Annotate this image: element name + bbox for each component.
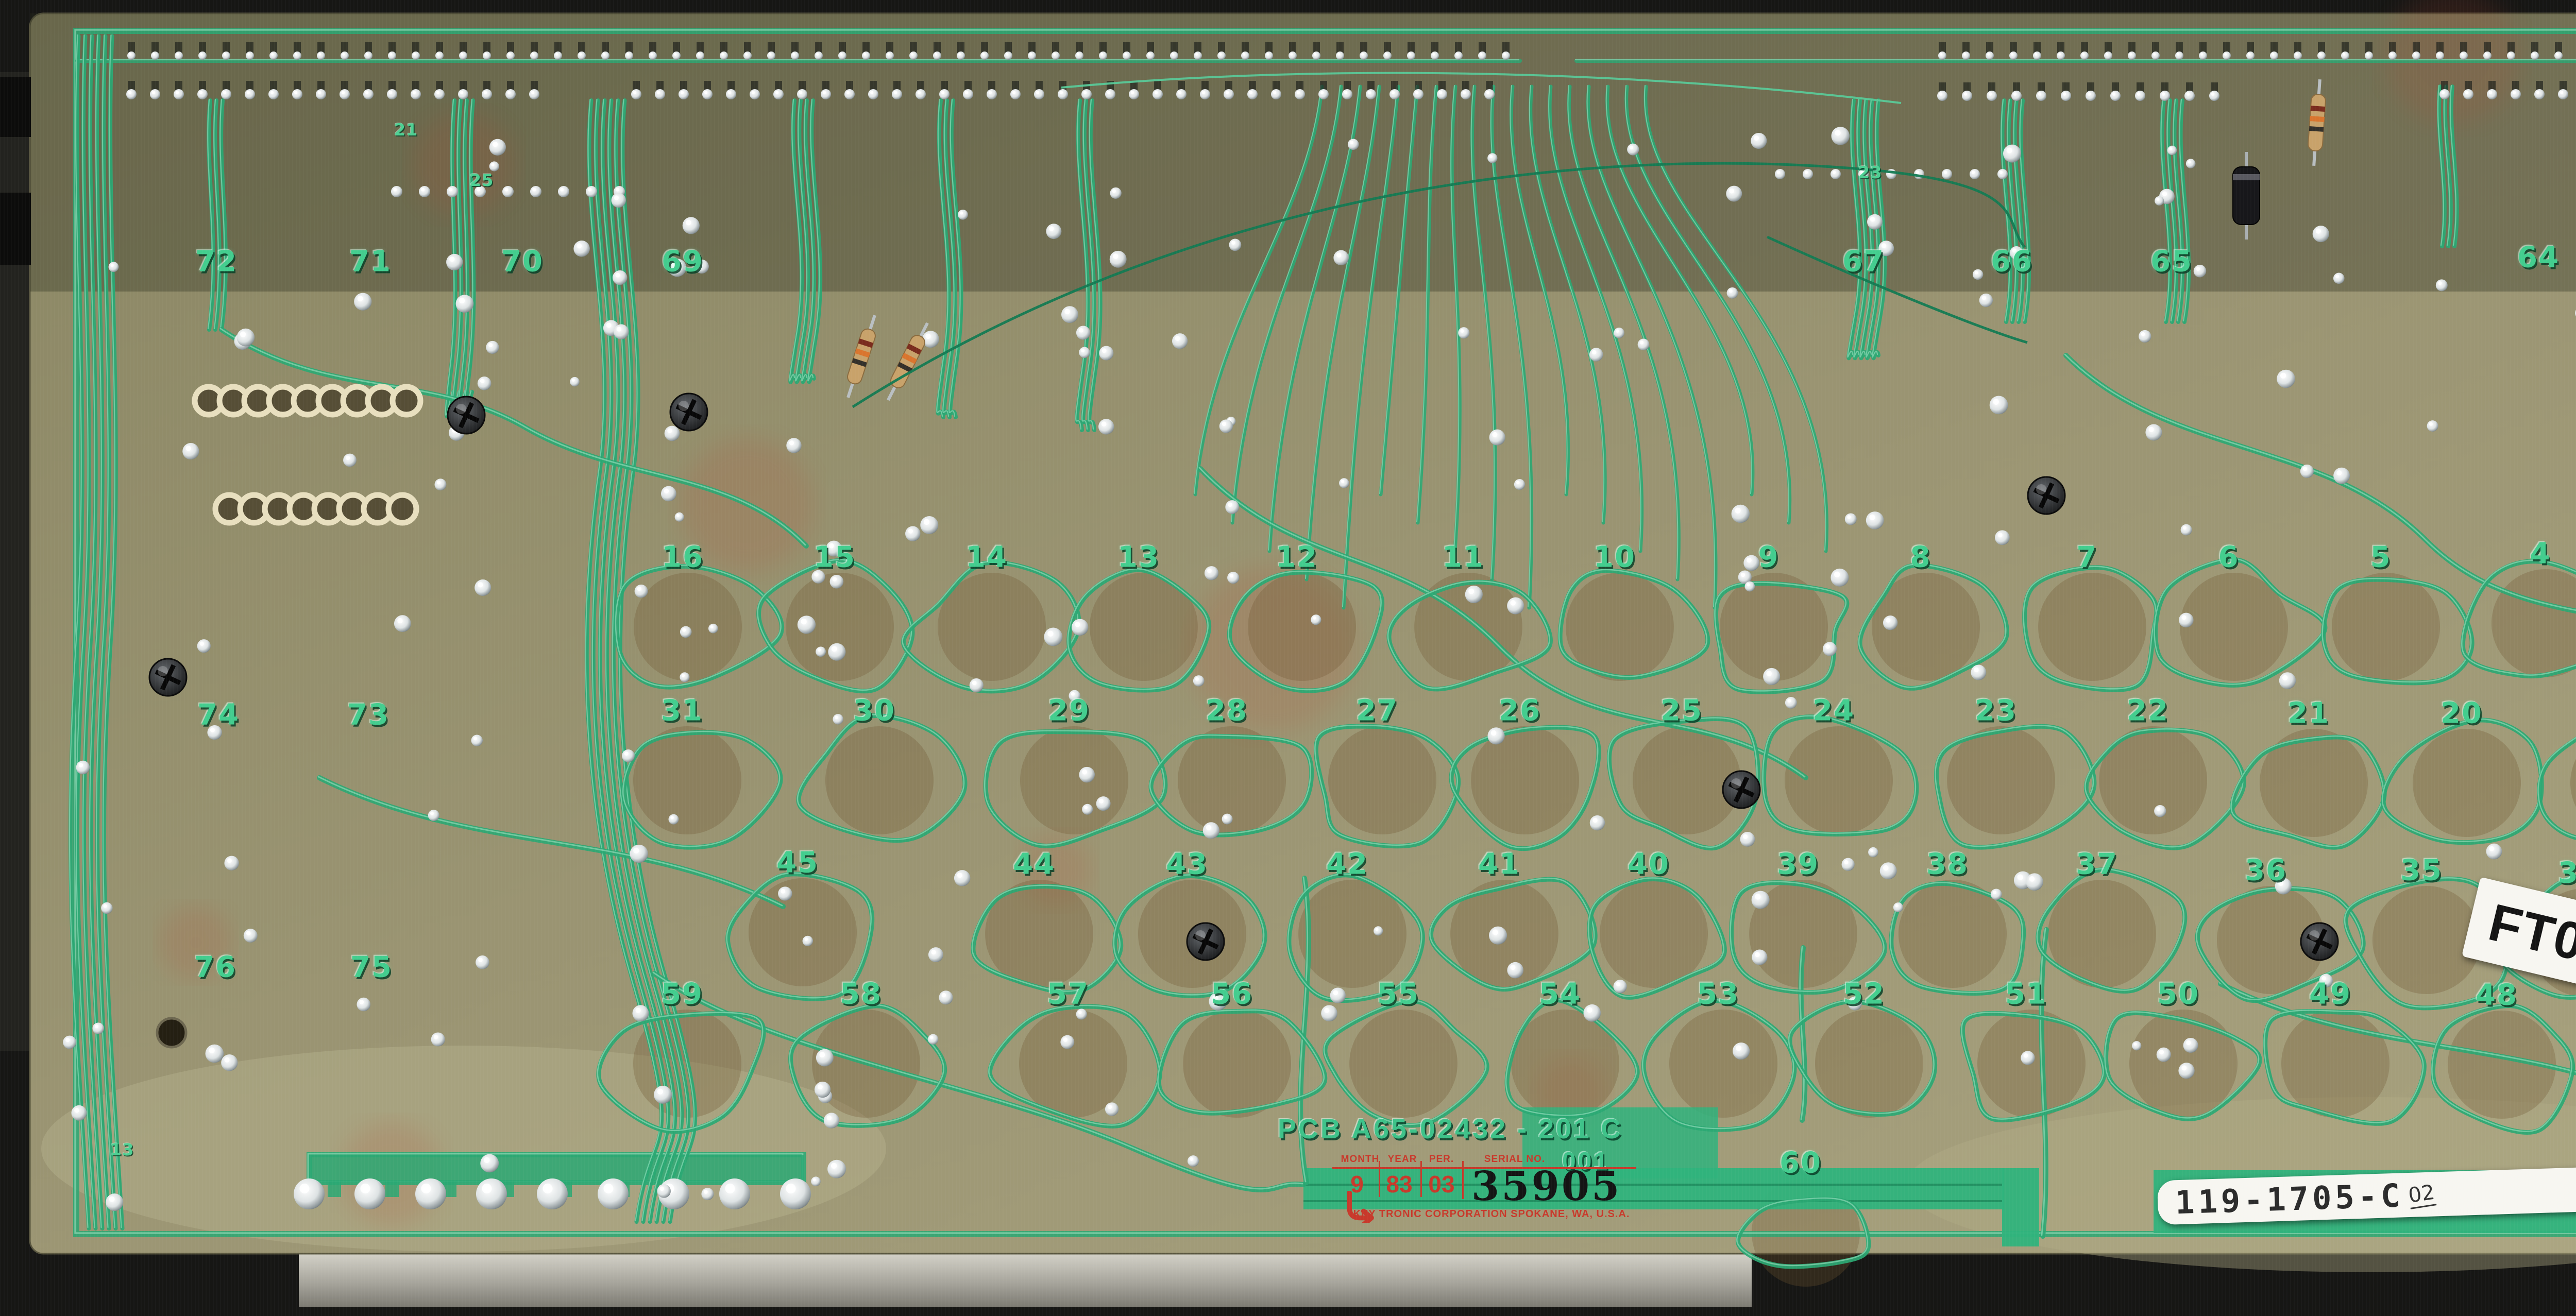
key-position-number-14: 14 — [965, 541, 1008, 574]
key-position-number-64: 64 — [2517, 241, 2560, 275]
key-position-number-8: 8 — [1910, 541, 1931, 574]
silkscreen-and-stickers: PCB A65-02432 - 201 C 001 MONTH YEAR PER… — [0, 0, 2576, 1316]
key-position-number-50: 50 — [2157, 978, 2199, 1011]
key-position-number-74: 74 — [197, 698, 240, 732]
stamp-header-per: PER. — [1429, 1154, 1454, 1165]
key-position-number-24: 24 — [1812, 694, 1855, 728]
key-position-number-16: 16 — [662, 541, 704, 574]
key-position-number-34: 34 — [2558, 857, 2576, 890]
key-position-number-26: 26 — [1499, 694, 1541, 728]
key-position-number-44: 44 — [1013, 848, 1055, 881]
serial-number: 35905 — [1471, 1163, 1621, 1210]
key-position-number-21: 21 — [2287, 697, 2330, 730]
key-position-number-9: 9 — [1758, 541, 1780, 574]
key-position-number-15: 15 — [814, 541, 856, 574]
key-position-number-38: 38 — [1926, 848, 1969, 881]
key-position-number-20: 20 — [2441, 697, 2483, 730]
key-position-number-36: 36 — [2245, 854, 2287, 887]
key-position-number-57: 57 — [1047, 978, 1089, 1011]
key-position-number-13: 13 — [1117, 541, 1160, 574]
key-position-number-51: 51 — [2005, 978, 2047, 1011]
key-position-number-69: 69 — [662, 245, 704, 279]
key-position-number-55: 55 — [1377, 978, 1419, 1011]
rev-sticker-text: 119-1705-C — [2175, 1176, 2404, 1221]
pcb-photo-scan: PCB A65-02432 - 201 C 001 MONTH YEAR PER… — [0, 0, 2576, 1316]
ft02-text: FT02 — [2483, 892, 2576, 980]
key-position-number-12: 12 — [1276, 541, 1318, 574]
key-position-number-28: 28 — [1206, 694, 1248, 728]
key-position-number-23: 23 — [1975, 694, 2017, 728]
key-position-number-58: 58 — [840, 978, 882, 1011]
key-position-number-54: 54 — [1539, 978, 1581, 1011]
key-position-number-72: 72 — [195, 245, 238, 279]
key-position-number-67: 67 — [1842, 245, 1885, 279]
tiny-trace-label-13: 13 — [110, 1140, 134, 1159]
key-position-number-59: 59 — [661, 978, 703, 1011]
key-position-number-70: 70 — [501, 245, 544, 279]
key-position-number-31: 31 — [661, 694, 703, 728]
tiny-trace-label-25: 25 — [470, 170, 494, 190]
key-position-number-10: 10 — [1594, 541, 1636, 574]
key-position-number-30: 30 — [853, 694, 895, 728]
key-position-number-35: 35 — [2400, 854, 2443, 887]
key-position-number-25: 25 — [1660, 694, 1703, 728]
key-position-number-37: 37 — [2076, 848, 2118, 881]
key-position-number-48: 48 — [2476, 979, 2518, 1012]
key-position-number-56: 56 — [1211, 978, 1253, 1011]
stamp-period-value: 03 — [1428, 1170, 1454, 1198]
stamp-divider — [1420, 1161, 1422, 1197]
key-position-number-52: 52 — [1843, 978, 1885, 1011]
key-position-number-75: 75 — [350, 951, 393, 984]
key-position-number-66: 66 — [1991, 245, 2033, 279]
key-position-number-7: 7 — [2077, 541, 2098, 574]
key-position-number-6: 6 — [2218, 541, 2240, 574]
key-position-number-11: 11 — [1442, 541, 1484, 574]
key-position-number-60: 60 — [1780, 1147, 1822, 1180]
key-position-number-22: 22 — [2127, 694, 2169, 728]
key-position-number-45: 45 — [776, 846, 819, 880]
manufacturer-line: KEY TRONIC CORPORATION SPOKANE, WA, U.S.… — [1353, 1208, 1630, 1220]
key-position-number-43: 43 — [1166, 848, 1208, 881]
key-position-number-71: 71 — [349, 245, 392, 279]
tiny-trace-label-21: 21 — [394, 120, 418, 140]
stamp-header-year: YEAR — [1388, 1154, 1417, 1165]
ft02-sticker: FT02 — [2462, 877, 2576, 995]
key-position-number-29: 29 — [1048, 694, 1090, 728]
stamp-year-value: 83 — [1386, 1170, 1412, 1198]
key-position-number-73: 73 — [347, 698, 389, 732]
key-position-number-76: 76 — [194, 951, 236, 984]
rev-sticker-suffix: 02 — [2407, 1180, 2437, 1209]
key-position-number-4: 4 — [2530, 537, 2551, 571]
stamp-divider — [1462, 1161, 1464, 1199]
key-position-number-40: 40 — [1628, 848, 1670, 881]
rev-sticker: 119-1705-C 02 — [2157, 1166, 2576, 1225]
key-position-number-39: 39 — [1777, 848, 1819, 881]
tiny-trace-label-23: 23 — [1858, 163, 1883, 182]
stamp-header-month: MONTH — [1341, 1154, 1380, 1165]
key-position-number-41: 41 — [1478, 848, 1520, 881]
key-position-number-53: 53 — [1697, 978, 1739, 1011]
key-position-number-49: 49 — [2309, 978, 2351, 1011]
key-position-number-27: 27 — [1356, 694, 1398, 728]
key-position-number-5: 5 — [2370, 541, 2392, 574]
part-number-stamp: PCB A65-02432 - 201 C — [1278, 1113, 1623, 1145]
key-position-number-42: 42 — [1326, 848, 1368, 881]
key-position-number-65: 65 — [2150, 245, 2193, 279]
